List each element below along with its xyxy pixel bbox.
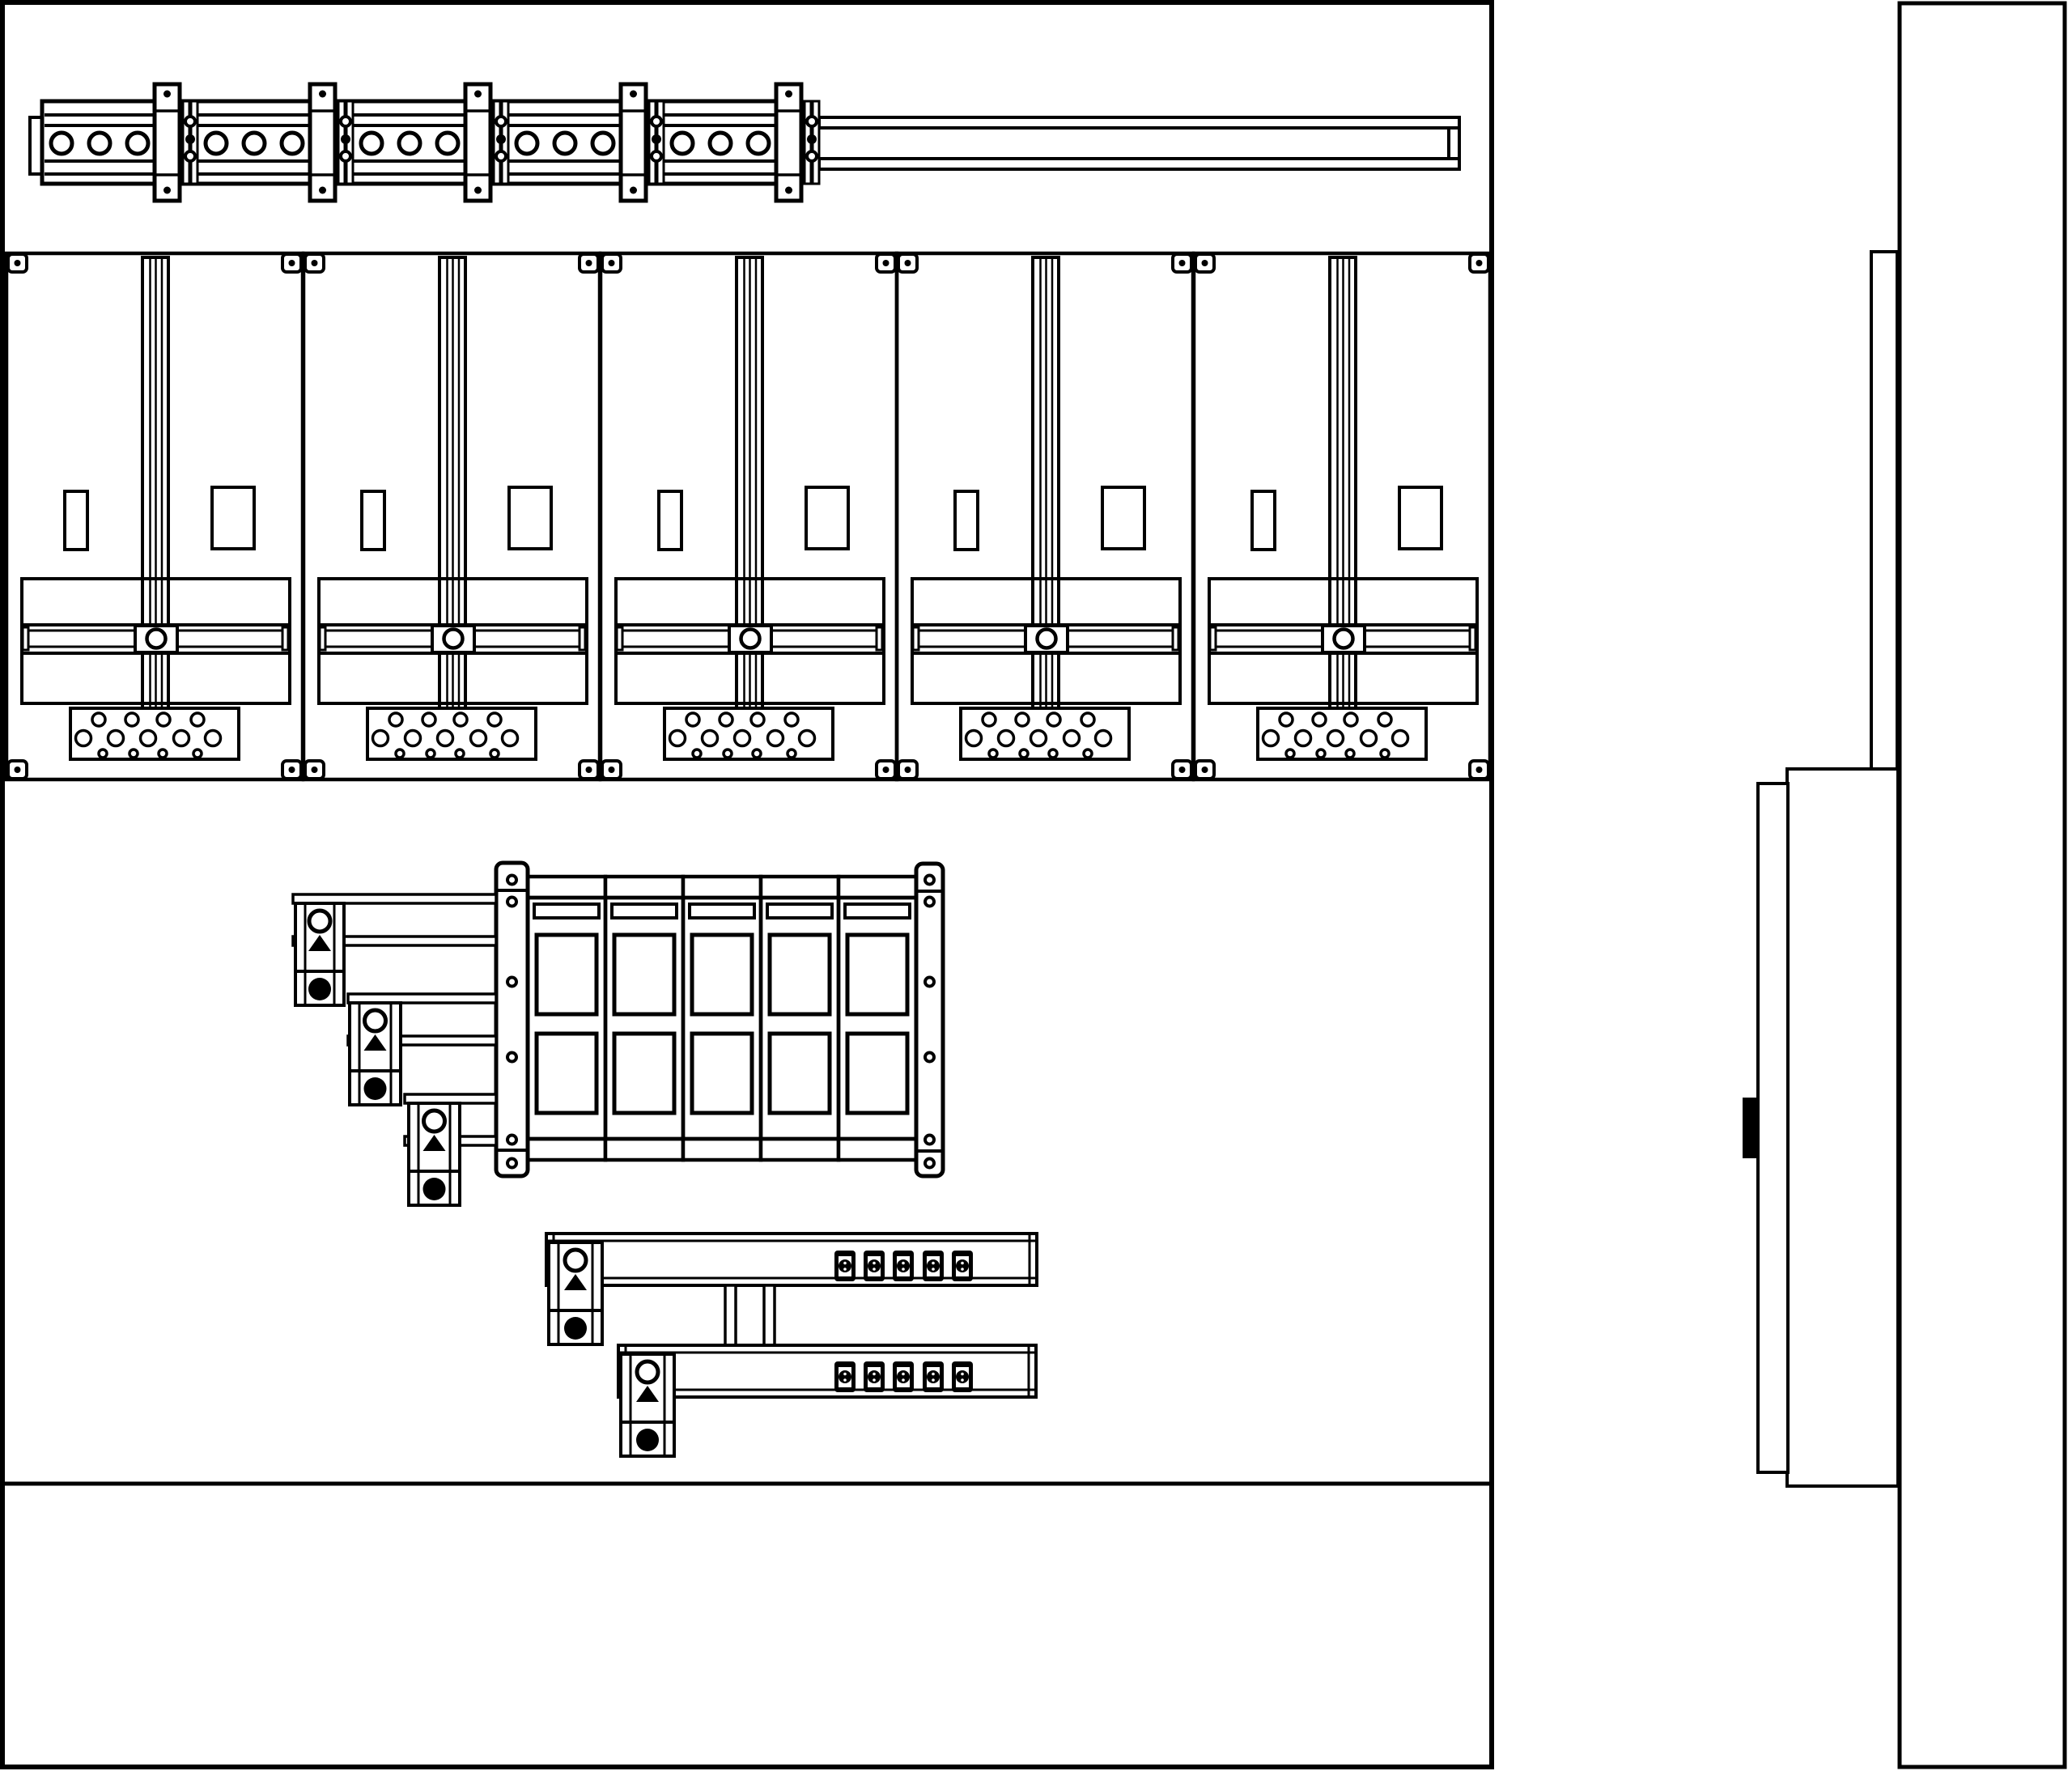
rack-right-side-rail xyxy=(916,864,943,1176)
terminal-glint xyxy=(902,1262,905,1265)
rail-joint-dot xyxy=(185,134,195,144)
gland-plate-hole xyxy=(193,750,202,758)
cabinet-side-view xyxy=(1743,3,2065,1767)
gland-plate-hole xyxy=(1346,750,1354,758)
distribution-rack xyxy=(496,863,943,1176)
rail-joint-dot xyxy=(185,117,195,126)
clamp-eye-circle xyxy=(309,911,330,932)
cross-rail-end-bar xyxy=(617,627,622,650)
rail-joint-dot xyxy=(807,151,817,161)
rail-hole xyxy=(672,133,693,154)
side-rail-screw-hole xyxy=(925,1136,934,1145)
gland-plate-hole xyxy=(159,750,167,758)
gland-plate-hole xyxy=(983,713,996,726)
rack-bottom-bar-segment xyxy=(683,1139,761,1160)
terminal-glint xyxy=(902,1378,905,1382)
gland-plate-hole xyxy=(454,713,467,726)
gland-plate-hole xyxy=(720,713,732,726)
terminal-glint xyxy=(873,1378,876,1382)
gland-plate-hole xyxy=(129,750,138,758)
rail-clamp-screw-dot xyxy=(163,187,171,194)
busbar-connector-strip xyxy=(764,1285,775,1345)
bracket-screw-dot xyxy=(609,767,615,773)
rail-joint-dot xyxy=(652,134,661,144)
gland-plate-hole xyxy=(1084,750,1092,758)
gland-plate-hole xyxy=(92,713,105,726)
gland-plate-hole xyxy=(1016,713,1029,726)
gland-plate-hole xyxy=(800,731,815,746)
rack-module-window xyxy=(537,1034,597,1113)
terminal-glint xyxy=(932,1268,935,1271)
gland-plate-hole xyxy=(396,750,404,758)
side-rail-screw-hole xyxy=(507,898,516,907)
rail-hole xyxy=(244,133,265,154)
rail-hole xyxy=(710,133,731,154)
bracket-screw-dot xyxy=(883,767,890,773)
terminal-glint xyxy=(932,1378,935,1382)
gland-plate-hole xyxy=(206,731,221,746)
rail-joint-dot xyxy=(496,134,506,144)
panel-slot-large xyxy=(1102,487,1144,549)
rail-clamp xyxy=(155,84,180,201)
gland-plate-hole xyxy=(471,731,486,746)
rail-clamp-screw-dot xyxy=(474,187,482,194)
rack-bottom-bar-segment xyxy=(761,1139,839,1160)
gland-plate-hole xyxy=(1296,731,1311,746)
terminal-glint xyxy=(873,1262,876,1265)
rail-hole xyxy=(51,133,72,154)
cross-rail-end-bar xyxy=(282,627,288,650)
gland-plate-hole xyxy=(693,750,701,758)
gland-plate-hole xyxy=(76,731,91,746)
cross-center-hole xyxy=(741,630,760,648)
busbar-connector-strip xyxy=(725,1285,736,1345)
gland-plate-hole xyxy=(1047,713,1060,726)
gland-plate-hole xyxy=(490,750,499,758)
side-rail-screw-hole xyxy=(925,1159,934,1168)
gland-plate-hole xyxy=(999,731,1014,746)
bracket-screw-dot xyxy=(1202,260,1208,266)
rack-top-bar-segment xyxy=(683,877,761,898)
gland-plate-hole xyxy=(141,731,156,746)
rack-column-label-slot xyxy=(690,904,754,918)
rail-clamp xyxy=(776,84,801,201)
rail-clamp xyxy=(465,84,490,201)
rail-clamp-screw-dot xyxy=(785,187,792,194)
terminal-glint xyxy=(843,1268,847,1271)
rail-clamp-screw-dot xyxy=(163,91,171,98)
rail-hole xyxy=(748,133,769,154)
side-rail-screw-hole xyxy=(507,1136,516,1145)
rail-hole xyxy=(437,133,458,154)
rail-hole xyxy=(282,133,303,154)
rack-bottom-bar-segment xyxy=(839,1139,916,1160)
rail-joint-dot xyxy=(341,151,350,161)
rail-hole xyxy=(399,133,420,154)
bracket-screw-dot xyxy=(15,260,21,266)
terminal-glint xyxy=(932,1262,935,1265)
panel-slot-small xyxy=(659,491,681,550)
rack-module-window xyxy=(692,935,752,1014)
lower-busbar-assemblies xyxy=(546,1234,1037,1456)
rack-top-bar-segment xyxy=(761,877,839,898)
gland-plate-hole xyxy=(422,713,435,726)
cross-center-hole xyxy=(444,630,463,648)
clamp-contact-dot xyxy=(308,978,331,1000)
terminal-glint xyxy=(843,1262,847,1265)
gland-plate-hole xyxy=(1263,731,1279,746)
extension-bottom-bar xyxy=(819,159,1459,169)
gland-plate-hole xyxy=(768,731,783,746)
rail-joint-dot xyxy=(185,151,195,161)
clamp-contact-dot xyxy=(636,1429,659,1451)
rail-joint-dot xyxy=(341,134,350,144)
rail-hole xyxy=(516,133,537,154)
cross-rail-end-bar xyxy=(1470,627,1475,650)
terminal-glint xyxy=(843,1373,847,1376)
cabinet-technical-drawing xyxy=(0,0,2072,1771)
panel-slot-large xyxy=(806,487,848,549)
gland-plate-hole xyxy=(389,713,402,726)
cross-center-hole xyxy=(1038,630,1056,648)
gland-plate-hole xyxy=(788,750,796,758)
bracket-screw-dot xyxy=(15,767,21,773)
clamp-eye-circle xyxy=(424,1111,445,1132)
side-view-body xyxy=(1787,769,1898,1486)
rail-joint-dot xyxy=(341,117,350,126)
cross-rail-end-bar xyxy=(580,627,585,650)
rail-hole xyxy=(361,133,382,154)
gland-plate-hole xyxy=(405,731,421,746)
meter-panel-row xyxy=(6,253,1490,779)
gland-plate-hole xyxy=(427,750,435,758)
gland-plate-hole xyxy=(703,731,718,746)
side-rail-screw-hole xyxy=(507,876,516,885)
cross-rail-end-bar xyxy=(877,627,882,650)
feeder-clamp-units xyxy=(293,894,496,1205)
gland-plate-hole xyxy=(1344,713,1357,726)
panel-slot-small xyxy=(955,491,978,550)
rack-module-window xyxy=(770,935,830,1014)
gland-plate-hole xyxy=(1020,750,1028,758)
rack-bottom-bar-segment xyxy=(605,1139,683,1160)
gland-plate-hole xyxy=(735,731,750,746)
terminal-glint xyxy=(873,1268,876,1271)
gland-plate-hole xyxy=(753,750,761,758)
side-view-rail-strip xyxy=(1871,252,1897,769)
bracket-screw-dot xyxy=(1179,767,1186,773)
rack-left-side-rail xyxy=(496,863,528,1176)
terminal-glint xyxy=(961,1373,964,1376)
top-busbar-rail-assembly xyxy=(30,84,1459,201)
side-rail-screw-hole xyxy=(925,1053,934,1062)
terminal-glint xyxy=(932,1373,935,1376)
rail-joint-dot xyxy=(807,134,817,144)
gland-plate-hole xyxy=(1328,731,1344,746)
terminal-glint xyxy=(961,1268,964,1271)
bracket-screw-dot xyxy=(905,260,911,266)
rack-top-bar-segment xyxy=(605,877,683,898)
rack-module-window xyxy=(692,1034,752,1113)
bracket-screw-dot xyxy=(905,767,911,773)
gland-plate-hole xyxy=(1313,713,1326,726)
gland-plate-hole xyxy=(1378,713,1391,726)
side-rail-screw-hole xyxy=(507,1159,516,1168)
cross-rail-end-bar xyxy=(1173,627,1178,650)
gland-plate-hole xyxy=(686,713,699,726)
bracket-screw-dot xyxy=(1202,767,1208,773)
side-rail-screw-hole xyxy=(925,898,934,907)
rack-module-window xyxy=(537,935,597,1014)
gland-plate-hole xyxy=(785,713,798,726)
cross-rail-end-bar xyxy=(320,627,325,650)
side-rail-screw-hole xyxy=(507,978,516,987)
gland-plate-hole xyxy=(1049,750,1057,758)
bracket-screw-dot xyxy=(586,260,592,266)
rail-joint-dot xyxy=(807,117,817,126)
gland-plate-hole xyxy=(989,750,997,758)
rack-top-bar-segment xyxy=(839,877,916,898)
gland-plate-hole xyxy=(174,731,189,746)
technical-drawing-page xyxy=(0,0,2072,1771)
rack-module-window xyxy=(614,1034,674,1113)
bracket-screw-dot xyxy=(289,767,295,773)
gland-plate-hole xyxy=(1031,731,1047,746)
cross-rail-end-bar xyxy=(913,627,919,650)
panel-slot-small xyxy=(362,491,384,550)
rail-clamp-screw-dot xyxy=(474,91,482,98)
terminal-glint xyxy=(961,1378,964,1382)
bracket-screw-dot xyxy=(1179,260,1186,266)
bracket-screw-dot xyxy=(289,260,295,266)
rack-column-label-slot xyxy=(612,904,677,918)
rail-joint-dot xyxy=(652,117,661,126)
terminal-glint xyxy=(843,1378,847,1382)
bracket-screw-dot xyxy=(586,767,592,773)
rail-clamp-screw-dot xyxy=(785,91,792,98)
gland-plate-hole xyxy=(456,750,464,758)
side-view-door-handle xyxy=(1743,1098,1760,1158)
cross-center-hole xyxy=(1335,630,1353,648)
rack-column-label-slot xyxy=(767,904,832,918)
terminal-glint xyxy=(902,1268,905,1271)
gland-plate-hole xyxy=(1286,750,1294,758)
cross-rail-end-bar xyxy=(1210,627,1216,650)
bracket-screw-dot xyxy=(1476,260,1483,266)
rail-joint-dot xyxy=(496,151,506,161)
rail-hole xyxy=(89,133,110,154)
clamp-eye-circle xyxy=(365,1010,386,1031)
clamp-contact-dot xyxy=(423,1178,446,1200)
rail-clamp xyxy=(621,84,646,201)
rail-clamp-screw-dot xyxy=(630,187,637,194)
side-view-door xyxy=(1758,784,1788,1472)
gland-plate-hole xyxy=(1381,750,1389,758)
clamp-eye-circle xyxy=(637,1361,658,1382)
bracket-screw-dot xyxy=(312,767,318,773)
gland-plate-hole xyxy=(108,731,124,746)
gland-plate-hole xyxy=(724,750,732,758)
gland-plate-hole xyxy=(1280,713,1293,726)
rail-joint-dot xyxy=(496,117,506,126)
panel-slot-small xyxy=(1252,491,1275,550)
gland-plate-hole xyxy=(670,731,686,746)
panel-slot-large xyxy=(1399,487,1441,549)
rack-column-label-slot xyxy=(845,904,910,918)
side-rail-screw-hole xyxy=(925,876,934,885)
panel-slot-small xyxy=(65,491,87,550)
rail-clamp xyxy=(310,84,335,201)
bracket-screw-dot xyxy=(883,260,890,266)
bracket-screw-dot xyxy=(312,260,318,266)
terminal-glint xyxy=(902,1373,905,1376)
clamp-eye-circle xyxy=(565,1250,586,1271)
rack-module-window xyxy=(847,1034,907,1113)
rail-joint-dot xyxy=(652,151,661,161)
panel-slot-large xyxy=(509,487,551,549)
cross-rail-end-bar xyxy=(23,627,28,650)
gland-plate-hole xyxy=(438,731,453,746)
gland-plate-hole xyxy=(191,713,204,726)
rail-hole xyxy=(554,133,575,154)
rack-bottom-bar-segment xyxy=(528,1139,605,1160)
rail-clamp-screw-dot xyxy=(630,91,637,98)
gland-plate-hole xyxy=(157,713,170,726)
extension-top-bar xyxy=(819,117,1459,128)
side-rail-screw-hole xyxy=(925,978,934,987)
gland-plate-hole xyxy=(1317,750,1325,758)
rail-hole xyxy=(206,133,227,154)
cross-center-hole xyxy=(147,630,166,648)
side-view-cabinet-panel xyxy=(1900,3,2065,1767)
gland-plate-hole xyxy=(1064,731,1080,746)
gland-plate-hole xyxy=(1393,731,1408,746)
gland-plate-hole xyxy=(488,713,501,726)
gland-plate-hole xyxy=(99,750,107,758)
clamp-contact-dot xyxy=(364,1077,387,1100)
terminal-glint xyxy=(961,1262,964,1265)
gland-plate-hole xyxy=(1361,731,1377,746)
rack-module-window xyxy=(847,935,907,1014)
gland-plate-hole xyxy=(503,731,518,746)
gland-plate-hole xyxy=(373,731,388,746)
rack-module-window xyxy=(614,935,674,1014)
rail-hole xyxy=(592,133,614,154)
rack-top-bar-segment xyxy=(528,877,605,898)
rack-column-label-slot xyxy=(534,904,599,918)
rack-module-window xyxy=(770,1034,830,1113)
clamp-contact-dot xyxy=(564,1317,587,1340)
gland-plate-hole xyxy=(1081,713,1094,726)
bracket-screw-dot xyxy=(609,260,615,266)
bracket-screw-dot xyxy=(1476,767,1483,773)
terminal-glint xyxy=(873,1373,876,1376)
gland-plate-hole xyxy=(966,731,982,746)
rail-clamp-screw-dot xyxy=(319,91,326,98)
rail-clamp-screw-dot xyxy=(319,187,326,194)
side-rail-screw-hole xyxy=(507,1053,516,1062)
gland-plate-hole xyxy=(1096,731,1111,746)
rail-hole xyxy=(127,133,148,154)
panel-slot-large xyxy=(212,487,254,549)
gland-plate-hole xyxy=(125,713,138,726)
gland-plate-hole xyxy=(751,713,764,726)
